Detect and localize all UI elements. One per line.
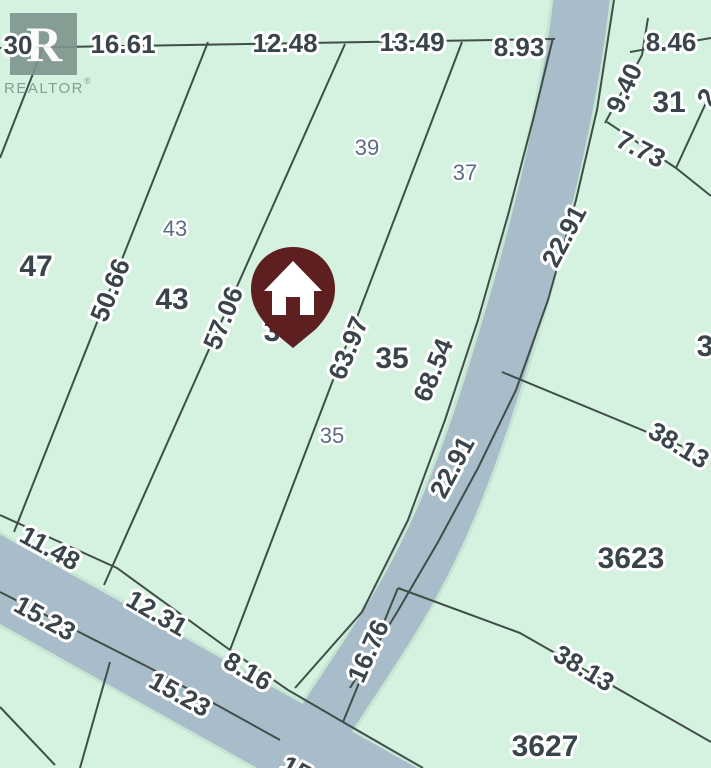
dimension-label: 16.61 (90, 29, 155, 59)
dimension-label: 13.49 (379, 27, 444, 57)
lot-number-label: 31 (652, 86, 685, 119)
realtor-brand-text: REALTOR (4, 80, 84, 97)
lot-number-label: 43 (155, 283, 188, 316)
lot-number-label: 3 (697, 330, 711, 363)
dimension-label: 8.93 (494, 32, 545, 62)
dimension-label: 30 (4, 30, 33, 60)
dimension-label: 12.48 (252, 28, 317, 58)
dimension-label: 8.46 (646, 27, 697, 57)
lot-number-label: 3627 (512, 730, 579, 763)
parcel-map: R REALTOR ® 30 16.61 12.48 13.49 8.93 8.… (0, 0, 711, 768)
civic-number-label: 35 (320, 423, 344, 448)
registered-trademark-icon: ® (84, 76, 91, 86)
lot-number-label: 3623 (598, 542, 665, 575)
parcel-map-canvas: R REALTOR ® 30 16.61 12.48 13.49 8.93 8.… (0, 0, 711, 768)
lot-number-label: 35 (375, 342, 408, 375)
lot-number-label: 47 (19, 250, 52, 283)
civic-number-label: 37 (453, 160, 477, 185)
civic-number-label: 39 (355, 135, 379, 160)
civic-number-label: 43 (163, 216, 187, 241)
